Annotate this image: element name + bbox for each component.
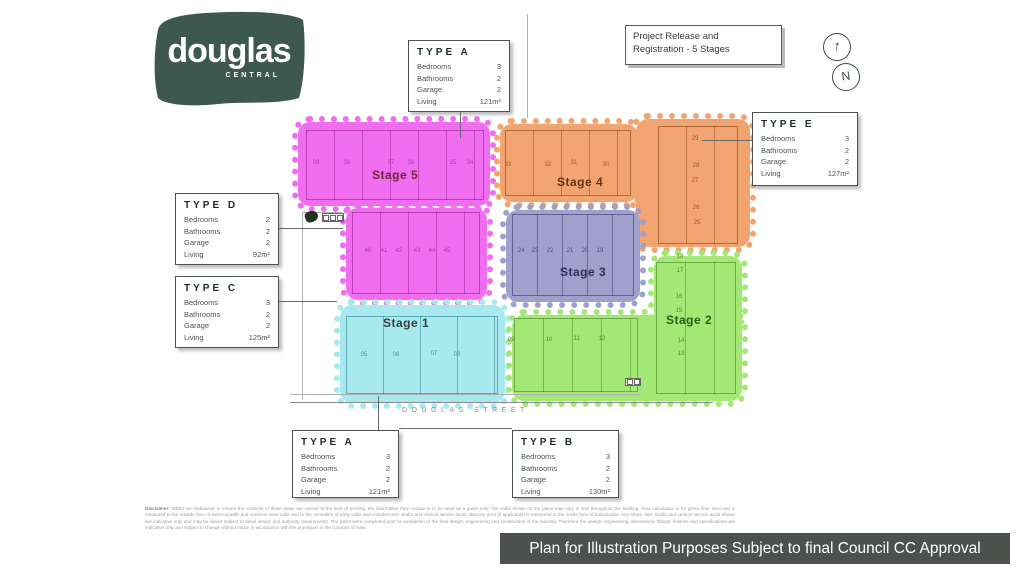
lot-number: 10 <box>546 337 553 343</box>
spec-row: Garage2 <box>521 474 610 486</box>
lot-number: 33 <box>505 162 512 168</box>
logo-subtext: CENTRAL <box>226 72 280 79</box>
lot-number: 35 <box>450 160 457 166</box>
disclaimer-text: Disclaimer: Whilst we endeavour to ensur… <box>145 506 735 532</box>
spec-row: Living130m² <box>521 486 610 498</box>
stage-label-1: Stage 1 <box>383 316 429 330</box>
spec-value: 2 <box>386 463 390 475</box>
connector-line-type-c <box>279 301 337 302</box>
spec-value: 121m² <box>369 486 390 498</box>
lot-number: 14 <box>678 338 685 344</box>
type-box-a-top: TYPE A Bedrooms3 Bathrooms2 Garage2 Livi… <box>408 40 510 112</box>
spec-value: 3 <box>386 451 390 463</box>
spec-value: 3 <box>497 61 501 73</box>
lot-number: 25 <box>694 220 701 226</box>
spec-label: Garage <box>761 156 786 168</box>
spec-row: Bathrooms2 <box>521 463 610 475</box>
spec-row: Garage2 <box>417 84 501 96</box>
lot-number: 16 <box>676 294 683 300</box>
spec-row: Living121m² <box>301 486 390 498</box>
lot-number: 07 <box>431 351 438 357</box>
lot-number: 31 <box>571 160 578 166</box>
lot-number: 21 <box>567 248 574 254</box>
meter-box <box>322 213 344 222</box>
spec-row: Bathrooms2 <box>301 463 390 475</box>
project-release-line1: Project Release and <box>633 30 774 43</box>
stage-label-3: Stage 3 <box>560 265 606 279</box>
disclaimer-heading: Disclaimer: <box>145 506 170 511</box>
connector-line-type-b <box>399 428 512 429</box>
spec-value: 2 <box>845 145 849 157</box>
spec-row: Garage2 <box>184 237 270 249</box>
plan-boundary-left <box>302 212 303 400</box>
disclaimer-body: Whilst we endeavour to ensure the conten… <box>145 506 735 530</box>
type-box-b: TYPE B Bedrooms3 Bathrooms2 Garage2 Livi… <box>512 430 619 498</box>
lot-number: 30 <box>603 162 610 168</box>
spec-value: 127m² <box>828 168 849 180</box>
project-release-box: Project Release and Registration - 5 Sta… <box>625 25 782 65</box>
lot-number: 19 <box>597 248 604 254</box>
lot-number: 09 <box>508 337 515 343</box>
type-box-title: TYPE A <box>417 47 501 58</box>
stage-label-4: Stage 4 <box>557 175 603 189</box>
spec-value: 125m² <box>249 332 270 344</box>
spec-value: 2 <box>845 156 849 168</box>
lot-number: 18 <box>677 254 684 260</box>
street-label: DOUGLAS STREET <box>402 407 529 414</box>
spec-row: Bathrooms2 <box>184 226 270 238</box>
spec-label: Living <box>761 168 781 180</box>
building-outline <box>514 318 638 392</box>
spec-row: Bathrooms2 <box>761 145 849 157</box>
spec-value: 3 <box>845 133 849 145</box>
connector-line-type-a-top <box>460 108 461 138</box>
lot-number: 13 <box>678 351 685 357</box>
spec-label: Bedrooms <box>521 451 555 463</box>
lot-number: 26 <box>693 205 700 211</box>
lot-number: 36 <box>408 160 415 166</box>
compass-arrow-icon: ↑ <box>822 32 851 60</box>
lot-number: 34 <box>467 160 474 166</box>
spec-label: Bathrooms <box>761 145 797 157</box>
spec-label: Garage <box>521 474 546 486</box>
spec-row: Living127m² <box>761 168 849 180</box>
spec-row: Garage2 <box>184 320 270 332</box>
lot-number: 12 <box>599 336 606 342</box>
street-line <box>290 402 713 403</box>
spec-row: Garage2 <box>301 474 390 486</box>
lot-number: 29 <box>692 136 699 142</box>
street-line <box>290 394 640 395</box>
type-box-title: TYPE E <box>761 119 849 130</box>
logo-wordmark: douglas <box>148 32 310 71</box>
lot-number: 37 <box>388 160 395 166</box>
connector-line-type-a-bottom <box>378 396 379 430</box>
lot-number: 23 <box>532 248 539 254</box>
spec-label: Bedrooms <box>761 133 795 145</box>
spec-label: Garage <box>301 474 326 486</box>
type-box-title: TYPE D <box>184 200 270 211</box>
compass-arrow-circle: ↑ <box>823 33 851 61</box>
spec-value: 121m² <box>480 96 501 108</box>
spec-value: 2 <box>266 320 270 332</box>
type-box-c: TYPE C Bedrooms3 Bathrooms2 Garage2 Livi… <box>175 276 279 348</box>
lot-number: 17 <box>677 268 684 274</box>
approval-banner: Plan for Illustration Purposes Subject t… <box>500 533 1010 564</box>
spec-label: Garage <box>184 237 209 249</box>
spec-label: Bedrooms <box>184 214 218 226</box>
spec-value: 2 <box>266 214 270 226</box>
type-box-e: TYPE E Bedrooms3 Bathrooms2 Garage2 Livi… <box>752 112 858 186</box>
compass-north-label: N <box>831 62 860 90</box>
spec-label: Living <box>184 332 204 344</box>
spec-value: 2 <box>606 463 610 475</box>
spec-label: Bathrooms <box>184 226 220 238</box>
survey-line <box>527 14 528 118</box>
lot-number: 38 <box>344 160 351 166</box>
building-outline <box>656 262 736 394</box>
spec-label: Bathrooms <box>417 73 453 85</box>
site-plan-page: douglas CENTRAL Project Release and Regi… <box>0 0 1024 577</box>
spec-row: Bedrooms3 <box>184 297 270 309</box>
spec-value: 2 <box>266 226 270 238</box>
type-box-title: TYPE B <box>521 437 610 448</box>
spec-row: Bedrooms3 <box>521 451 610 463</box>
lot-number: 06 <box>393 352 400 358</box>
spec-row: Bathrooms2 <box>417 73 501 85</box>
spec-value: 2 <box>497 84 501 96</box>
spec-value: 92m² <box>253 249 270 261</box>
spec-label: Bathrooms <box>301 463 337 475</box>
building-outline <box>658 126 738 244</box>
spec-row: Garage2 <box>761 156 849 168</box>
spec-label: Living <box>184 249 204 261</box>
spec-row: Bedrooms3 <box>417 61 501 73</box>
spec-value: 2 <box>497 73 501 85</box>
lot-number: 32 <box>545 162 552 168</box>
lot-number: 28 <box>693 163 700 169</box>
lot-number: 08 <box>454 352 461 358</box>
spec-label: Living <box>417 96 437 108</box>
spec-value: 2 <box>266 237 270 249</box>
spec-label: Bedrooms <box>301 451 335 463</box>
spec-label: Bedrooms <box>184 297 218 309</box>
stage-label-5: Stage 5 <box>372 168 418 182</box>
spec-value: 2 <box>606 474 610 486</box>
lot-number: 42 <box>396 248 403 254</box>
lot-number: 20 <box>582 248 589 254</box>
lot-number: 45 <box>444 248 451 254</box>
lot-number: 41 <box>381 248 388 254</box>
spec-label: Living <box>521 486 541 498</box>
spec-label: Living <box>301 486 321 498</box>
spec-value: 130m² <box>589 486 610 498</box>
lot-number: 22 <box>547 248 554 254</box>
type-box-title: TYPE A <box>301 437 390 448</box>
spec-label: Garage <box>417 84 442 96</box>
type-box-d: TYPE D Bedrooms2 Bathrooms2 Garage2 Livi… <box>175 193 279 265</box>
spec-value: 3 <box>606 451 610 463</box>
lot-number: 44 <box>429 248 436 254</box>
lot-number: 05 <box>361 352 368 358</box>
type-box-a-bottom: TYPE A Bedrooms3 Bathrooms2 Garage2 Livi… <box>292 430 399 498</box>
lot-number: 11 <box>574 336 580 342</box>
lot-number: 24 <box>518 248 525 254</box>
spec-row: Bathrooms2 <box>184 309 270 321</box>
spec-row: Living92m² <box>184 249 270 261</box>
meter-box <box>625 378 641 386</box>
spec-row: Living125m² <box>184 332 270 344</box>
lot-number: 39 <box>313 160 320 166</box>
project-release-line2: Registration - 5 Stages <box>633 43 774 56</box>
spec-row: Bedrooms3 <box>761 133 849 145</box>
spec-label: Garage <box>184 320 209 332</box>
spec-row: Living121m² <box>417 96 501 108</box>
spec-value: 2 <box>266 309 270 321</box>
lot-number: 40 <box>365 248 372 254</box>
spec-row: Bedrooms2 <box>184 214 270 226</box>
type-box-title: TYPE C <box>184 283 270 294</box>
spec-label: Bedrooms <box>417 61 451 73</box>
compass-north-circle: N <box>832 63 860 91</box>
douglas-central-logo: douglas CENTRAL <box>148 8 310 110</box>
spec-label: Bathrooms <box>521 463 557 475</box>
building-outline <box>512 214 634 296</box>
stage-label-2: Stage 2 <box>666 313 712 327</box>
spec-row: Bedrooms3 <box>301 451 390 463</box>
spec-value: 3 <box>266 297 270 309</box>
lot-number: 27 <box>692 178 699 184</box>
lot-number: 43 <box>414 248 421 254</box>
spec-label: Bathrooms <box>184 309 220 321</box>
connector-line-type-e <box>702 140 752 141</box>
connector-line-type-d <box>279 228 343 229</box>
building-outline <box>306 130 484 200</box>
spec-value: 2 <box>386 474 390 486</box>
